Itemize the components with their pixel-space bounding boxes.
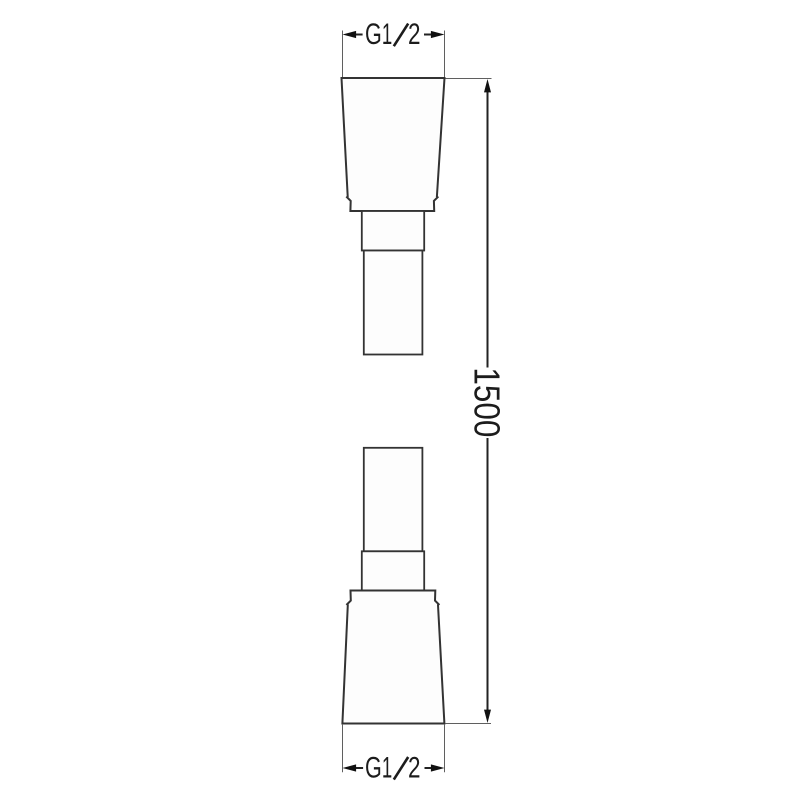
svg-text:1500: 1500	[467, 367, 508, 437]
svg-text:1: 1	[382, 751, 392, 785]
svg-text:2: 2	[408, 750, 421, 784]
svg-text:1: 1	[382, 18, 392, 52]
svg-text:2: 2	[408, 17, 421, 51]
svg-text:G: G	[365, 750, 382, 784]
svg-text:G: G	[365, 17, 382, 51]
